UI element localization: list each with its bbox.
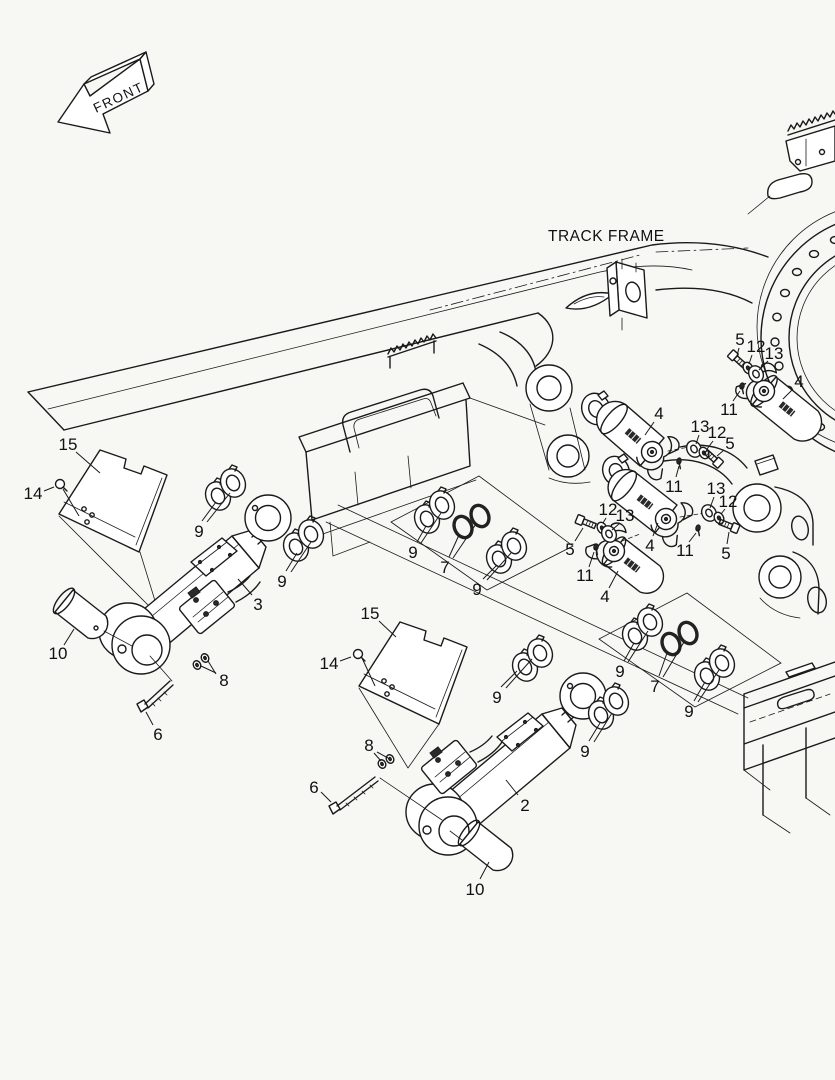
- part-number-label: 14: [320, 654, 339, 673]
- part-number-label: 4: [645, 536, 654, 555]
- part-number-label: 6: [153, 725, 162, 744]
- part-number-label: 5: [721, 544, 730, 563]
- part-number-label: 15: [59, 435, 78, 454]
- part-number-label: 2: [520, 796, 529, 815]
- part-number-label: 5: [565, 540, 574, 559]
- part-number-label: 13: [765, 344, 784, 363]
- part-number-label: 3: [253, 595, 262, 614]
- part-number-label: 8: [219, 671, 228, 690]
- part-number-label: 5: [725, 434, 734, 453]
- part-number-label: 9: [472, 580, 481, 599]
- part-number-label: 9: [492, 688, 501, 707]
- part-number-label: 5: [735, 330, 744, 349]
- part-number-label: 9: [580, 742, 589, 761]
- part-number-label: 13: [616, 506, 635, 525]
- part-number-label: 10: [466, 880, 485, 899]
- cylinder-3-rod-eye: [245, 495, 291, 541]
- part-number-label: 9: [408, 543, 417, 562]
- part-number-label: 7: [650, 677, 659, 696]
- part-number-label: 12: [747, 337, 766, 356]
- part-number-label: 7: [440, 558, 449, 577]
- part-number-label: 14: [24, 484, 43, 503]
- part-number-label: 4: [600, 587, 609, 606]
- part-number-label: 8: [364, 736, 373, 755]
- part-number-label: 9: [194, 522, 203, 541]
- exploded-parts-diagram: FRONT TRACK FRAME: [0, 0, 835, 1080]
- part-number-label: 12: [719, 492, 738, 511]
- part-number-label: 10: [49, 644, 68, 663]
- parts-diagram-page: FRONT TRACK FRAME: [0, 0, 835, 1080]
- part-number-label: 9: [684, 702, 693, 721]
- part-number-label: 9: [615, 662, 624, 681]
- part-number-label: 11: [665, 477, 683, 496]
- track-frame-label: TRACK FRAME: [548, 228, 665, 245]
- part-number-label: 12: [708, 423, 727, 442]
- part-number-label: 6: [309, 778, 318, 797]
- part-number-label: 11: [720, 400, 738, 419]
- part-number-label: 4: [654, 404, 663, 423]
- part-number-label: 11: [676, 541, 694, 560]
- part-number-label: 11: [576, 566, 594, 585]
- part-number-label: 15: [361, 604, 380, 623]
- part-number-label: 9: [277, 572, 286, 591]
- part-number-label: 4: [794, 372, 803, 391]
- callout-12-29: 12: [719, 492, 738, 514]
